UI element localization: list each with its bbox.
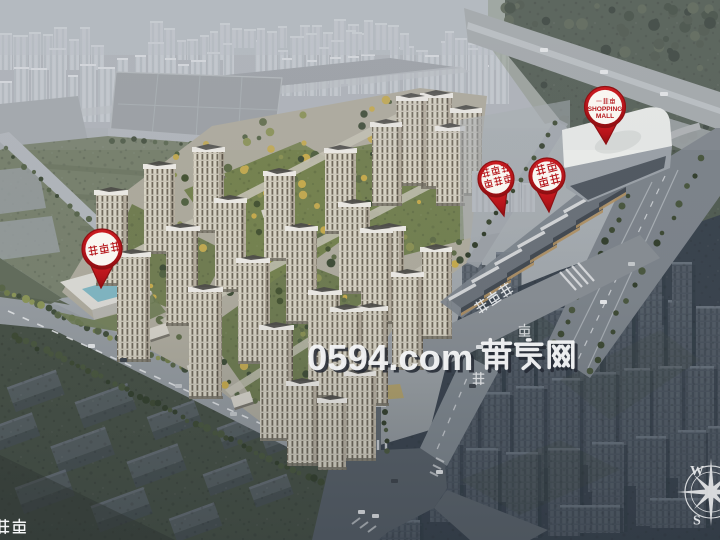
svg-text:MALL: MALL bbox=[596, 113, 614, 120]
svg-text:SHOPPING: SHOPPING bbox=[588, 106, 623, 113]
svg-text:S: S bbox=[693, 514, 701, 529]
svg-text:0594.com: 0594.com bbox=[307, 337, 473, 378]
svg-text:W: W bbox=[690, 464, 704, 479]
